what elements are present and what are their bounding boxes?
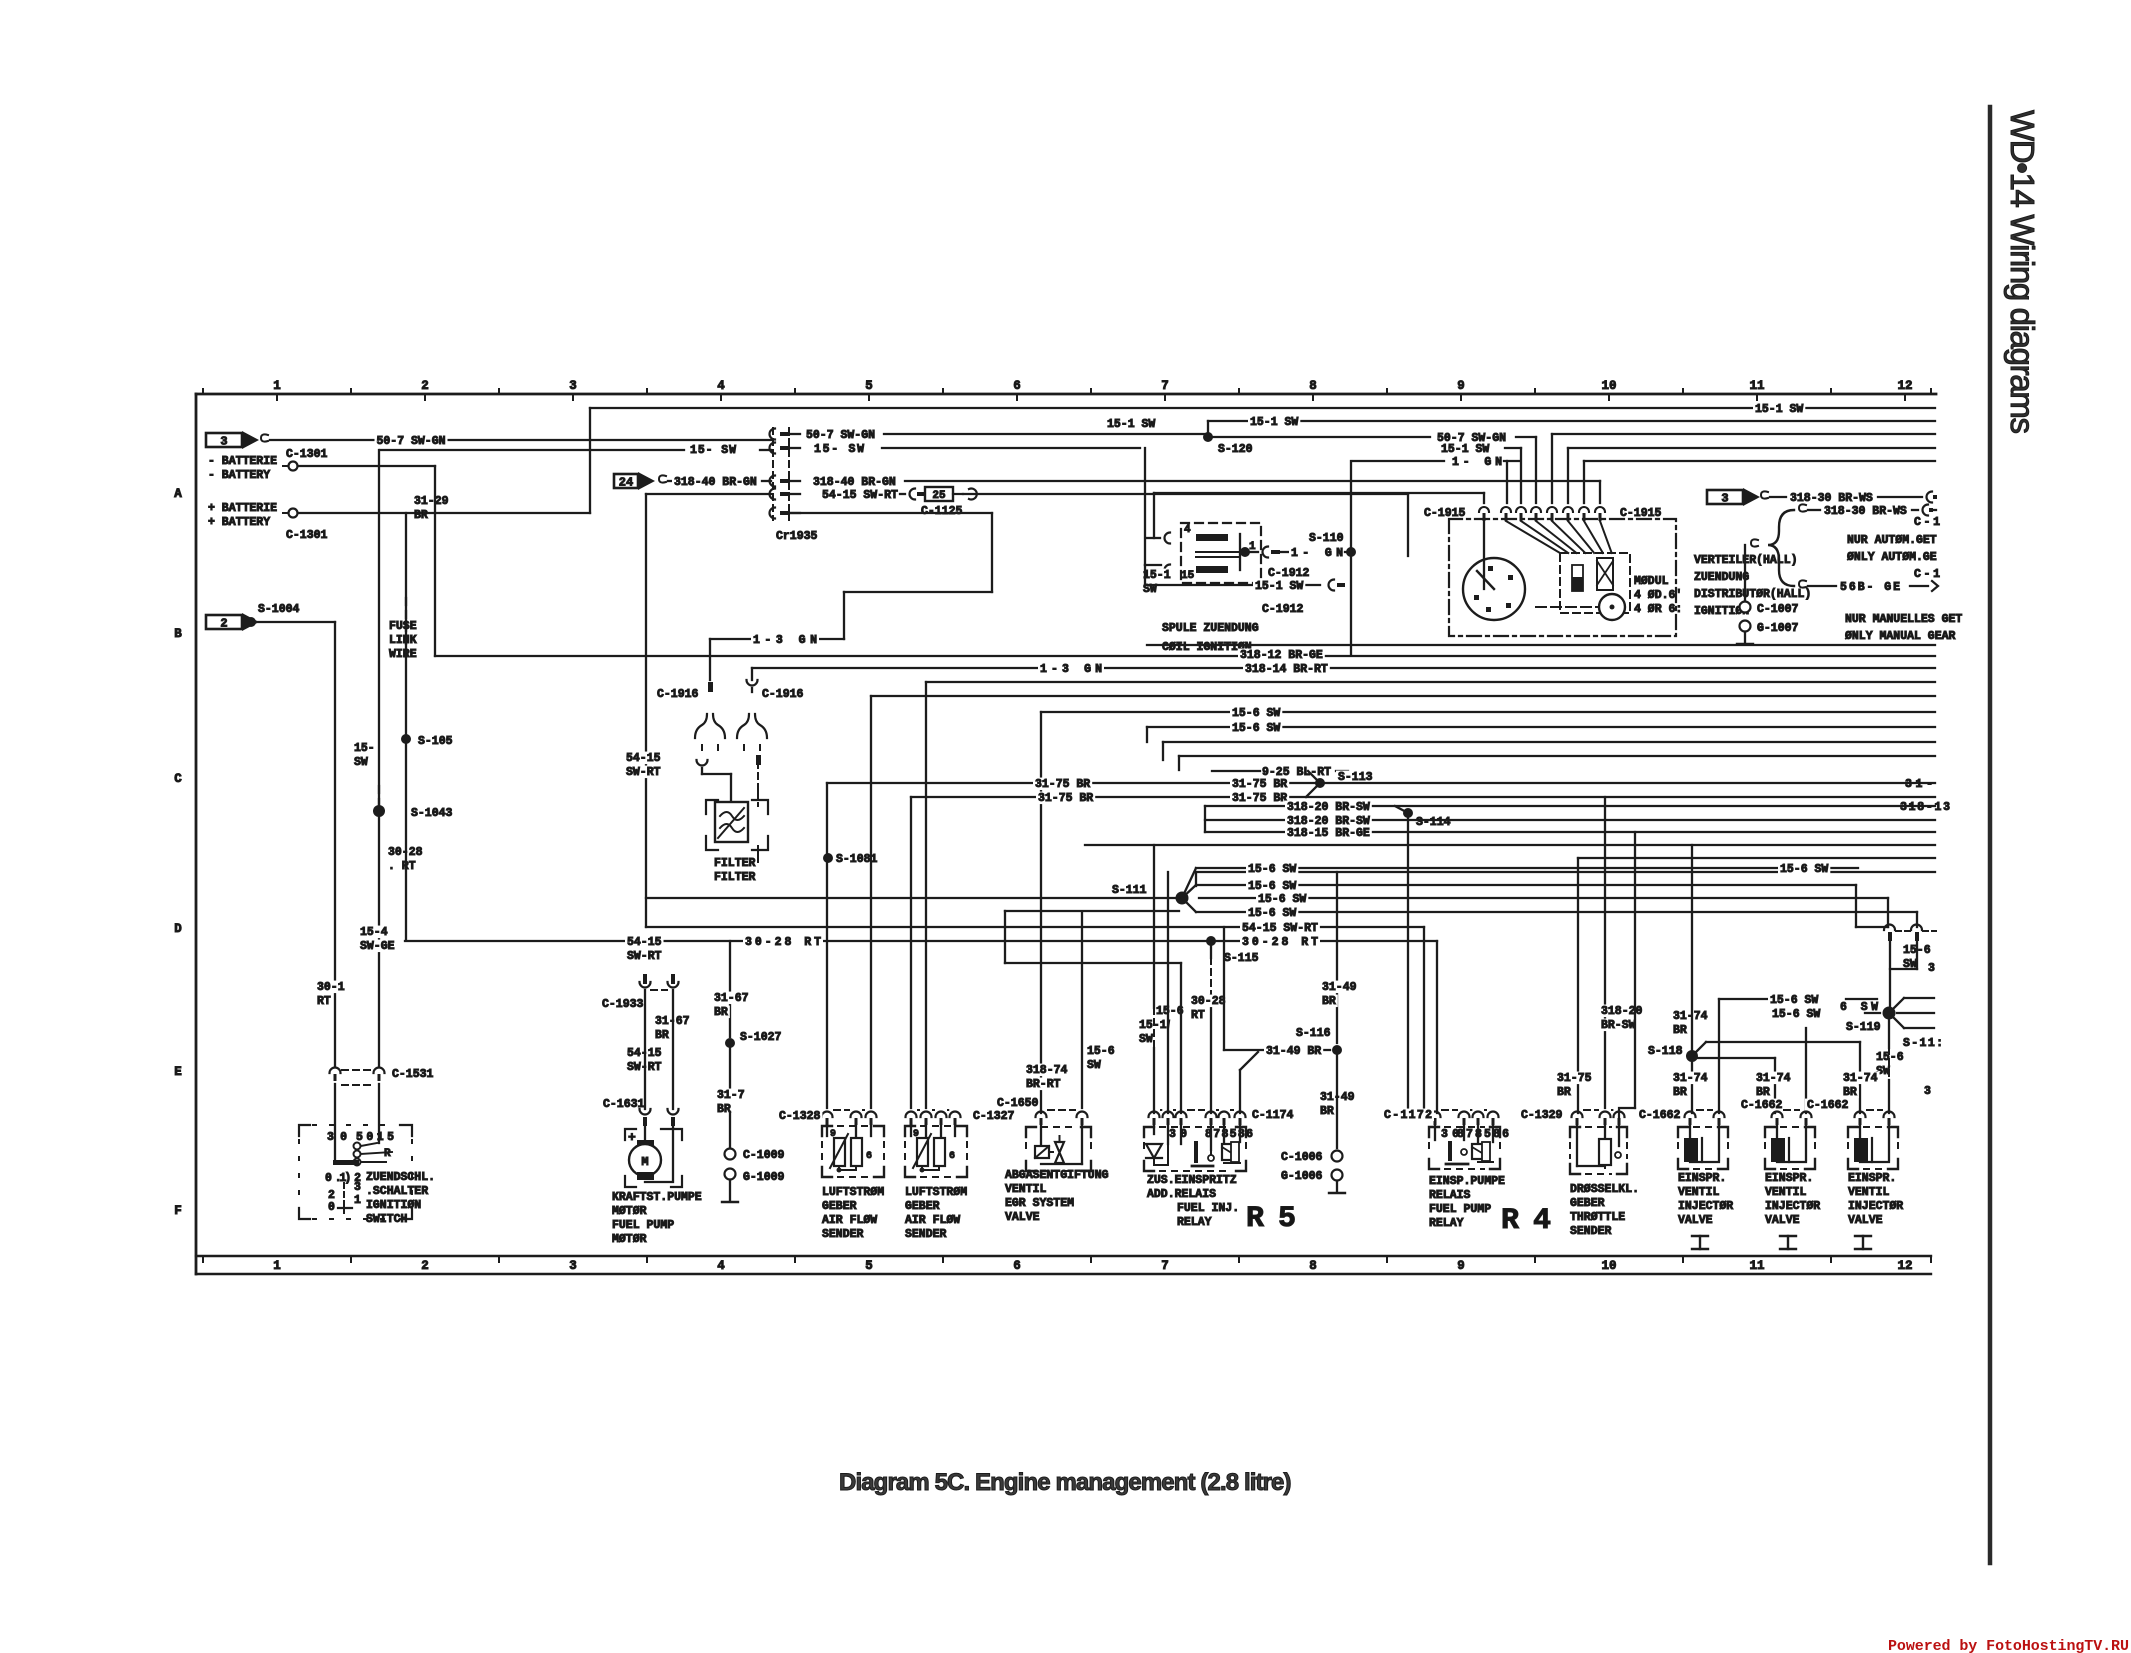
svg-text:+ BATTERY: + BATTERY xyxy=(208,516,270,529)
svg-text:ZUENDSCHL.: ZUENDSCHL. xyxy=(366,1171,435,1184)
svg-text:15-1 SW: 15-1 SW xyxy=(1441,443,1489,456)
svg-text:BR: BR xyxy=(1756,1086,1770,1099)
svg-text:3: 3 xyxy=(1721,492,1728,506)
svg-text:31-74: 31-74 xyxy=(1673,1010,1708,1023)
svg-text:BR: BR xyxy=(1673,1086,1687,1099)
svg-text:12: 12 xyxy=(1898,1259,1913,1273)
svg-text:S-1004: S-1004 xyxy=(258,603,299,616)
svg-text:C-1329: C-1329 xyxy=(1521,1109,1562,1122)
svg-text:12: 12 xyxy=(1898,379,1913,393)
svg-text:50-7 SW-GN: 50-7 SW-GN xyxy=(806,429,875,442)
svg-text:31-7: 31-7 xyxy=(717,1089,745,1102)
svg-text:8: 8 xyxy=(1309,379,1317,393)
svg-text:BR-RT: BR-RT xyxy=(1026,1078,1061,1091)
svg-text:318-40 BR-GN: 318-40 BR-GN xyxy=(813,476,896,489)
svg-text:SENDER: SENDER xyxy=(1570,1225,1611,1238)
svg-text:S-110: S-110 xyxy=(1309,532,1344,545)
svg-text:C-1916: C-1916 xyxy=(657,688,698,701)
svg-text:C-1662: C-1662 xyxy=(1807,1099,1848,1112)
svg-text:F: F xyxy=(174,1204,182,1218)
svg-text:3: 3 xyxy=(220,435,227,449)
svg-text:15-6 SW: 15-6 SW xyxy=(1232,722,1280,735)
svg-text:4 ØR 6:: 4 ØR 6: xyxy=(1634,603,1682,616)
svg-text:15-: 15- xyxy=(354,742,375,755)
svg-text:C-1006: C-1006 xyxy=(1281,1151,1322,1164)
svg-text:G-1007: G-1007 xyxy=(1757,622,1798,635)
svg-text:SW: SW xyxy=(1087,1059,1101,1072)
svg-text:2: 2 xyxy=(421,379,429,393)
svg-text:25: 25 xyxy=(932,490,946,502)
svg-text:31-75: 31-75 xyxy=(1557,1072,1592,1085)
svg-text:- BATTERIE: - BATTERIE xyxy=(208,455,277,468)
svg-text:DRØSSELKL.: DRØSSELKL. xyxy=(1570,1183,1639,1196)
svg-text:15-1: 15-1 xyxy=(1143,569,1171,582)
svg-text:MØTØR: MØTØR xyxy=(612,1205,647,1218)
svg-text:10: 10 xyxy=(1602,1259,1617,1273)
svg-text:C-1531: C-1531 xyxy=(392,1068,433,1081)
svg-text:C-1174: C-1174 xyxy=(1252,1109,1293,1122)
svg-text:BR: BR xyxy=(714,1006,728,1019)
svg-text:31-75 BR: 31-75 BR xyxy=(1038,792,1093,805)
svg-text:BR: BR xyxy=(1673,1024,1687,1037)
svg-text:BR: BR xyxy=(1557,1086,1571,1099)
svg-text:S-115: S-115 xyxy=(1224,952,1259,965)
svg-text:. RT: . RT xyxy=(388,860,416,873)
svg-text:S-1043: S-1043 xyxy=(411,807,452,820)
svg-text:SENDER: SENDER xyxy=(822,1228,863,1241)
svg-text:BR: BR xyxy=(1322,995,1336,1008)
svg-text:C-1662: C-1662 xyxy=(1741,1099,1782,1112)
svg-text:SWITCH: SWITCH xyxy=(366,1213,407,1226)
svg-text:WD•14 Wiring diagrams: WD•14 Wiring diagrams xyxy=(2004,110,2041,434)
svg-text:BR: BR xyxy=(655,1029,669,1042)
svg-text:31-75 BR: 31-75 BR xyxy=(1035,778,1090,791)
svg-text:D: D xyxy=(174,922,182,936)
svg-text:ADD.RELAIS: ADD.RELAIS xyxy=(1147,1188,1216,1201)
svg-text:15-6 SW: 15-6 SW xyxy=(1258,893,1306,906)
svg-text:10: 10 xyxy=(1602,379,1617,393)
svg-text:FILTER: FILTER xyxy=(714,871,755,884)
svg-text:31-29: 31-29 xyxy=(414,495,449,508)
svg-text:4 ØD.6': 4 ØD.6' xyxy=(1634,589,1682,602)
svg-text:.SCHALTER: .SCHALTER xyxy=(366,1185,428,1198)
svg-text:C-1328: C-1328 xyxy=(779,1110,820,1123)
svg-text:15-1 SW: 15-1 SW xyxy=(1250,416,1298,429)
svg-text:5: 5 xyxy=(865,1259,873,1273)
svg-text:ZUENDUNG: ZUENDUNG xyxy=(1694,571,1749,584)
svg-text:3: 3 xyxy=(1928,962,1935,975)
svg-text:318-30 BR-WS: 318-30 BR-WS xyxy=(1824,505,1907,518)
svg-text:1: 1 xyxy=(354,1194,361,1207)
svg-text:15-6 SW: 15-6 SW xyxy=(1770,994,1818,1007)
svg-text:ØNLY AUTØM.GE: ØNLY AUTØM.GE xyxy=(1847,551,1937,564)
svg-text:VENTIL: VENTIL xyxy=(1678,1186,1719,1199)
svg-text:VALVE: VALVE xyxy=(1678,1214,1713,1227)
svg-text:AIR FLØW: AIR FLØW xyxy=(822,1214,877,1227)
svg-text:C-1933: C-1933 xyxy=(602,998,643,1011)
svg-text:S-119: S-119 xyxy=(1846,1021,1881,1034)
svg-text:R: R xyxy=(384,1148,391,1160)
svg-text:ØNLY MANUAL GEAR: ØNLY MANUAL GEAR xyxy=(1845,630,1955,643)
svg-text:9: 9 xyxy=(1457,379,1465,393)
svg-text:M: M xyxy=(641,1155,648,1169)
svg-text:BR: BR xyxy=(1320,1105,1334,1118)
svg-text:31-74: 31-74 xyxy=(1756,1072,1791,1085)
svg-text:15-1 SW: 15-1 SW xyxy=(1255,580,1303,593)
svg-text:15-1: 15-1 xyxy=(1139,1019,1167,1032)
svg-text:E: E xyxy=(174,1065,182,1079)
svg-text:31-49 BR: 31-49 BR xyxy=(1266,1045,1321,1058)
svg-text:15-1 SW: 15-1 SW xyxy=(1755,403,1803,416)
svg-text:S-116: S-116 xyxy=(1296,1027,1331,1040)
svg-text:THRØTTLE: THRØTTLE xyxy=(1570,1211,1625,1224)
svg-text:INJECTØR: INJECTØR xyxy=(1848,1200,1903,1213)
svg-text:BR: BR xyxy=(414,509,428,522)
svg-text:15-6 SW: 15-6 SW xyxy=(1772,1008,1820,1021)
svg-text:11: 11 xyxy=(1750,379,1765,393)
svg-text:LUFTSTRØM: LUFTSTRØM xyxy=(822,1186,884,1199)
svg-text:GEBER: GEBER xyxy=(822,1200,857,1213)
svg-text:4: 4 xyxy=(717,379,725,393)
svg-text:EINSPR.: EINSPR. xyxy=(1848,1172,1896,1185)
svg-text:SW-RT: SW-RT xyxy=(627,950,662,963)
svg-text:318-20: 318-20 xyxy=(1601,1005,1642,1018)
svg-text:50-7 SW-GN: 50-7 SW-GN xyxy=(377,435,446,448)
svg-text:G-1009: G-1009 xyxy=(743,1171,784,1184)
svg-text:Diagram 5C. Engine management: Diagram 5C. Engine management (2.8 litre… xyxy=(839,1469,1291,1496)
svg-text:1: 1 xyxy=(273,1259,281,1273)
svg-text:C-1916: C-1916 xyxy=(762,688,803,701)
svg-text:S-105: S-105 xyxy=(418,735,453,748)
svg-text:VENTIL: VENTIL xyxy=(1005,1183,1046,1196)
svg-text:ABGASENTGIFTUNG: ABGASENTGIFTUNG xyxy=(1005,1169,1109,1182)
svg-text:30-28: 30-28 xyxy=(1191,995,1226,1008)
svg-text:NUR MANUELLES GET: NUR MANUELLES GET xyxy=(1845,613,1962,626)
svg-text:C-1: C-1 xyxy=(1914,516,1940,529)
svg-text:C-1631: C-1631 xyxy=(603,1098,644,1111)
svg-text:318-40 BR-GN: 318-40 BR-GN xyxy=(674,476,757,489)
svg-text:31-74: 31-74 xyxy=(1673,1072,1708,1085)
svg-text:31-74: 31-74 xyxy=(1843,1072,1878,1085)
svg-text:31-: 31- xyxy=(1905,778,1933,791)
svg-text:24: 24 xyxy=(619,476,633,490)
svg-text:SW: SW xyxy=(354,756,368,769)
svg-text:LINK: LINK xyxy=(389,634,417,647)
svg-text:INJECTØR: INJECTØR xyxy=(1765,1200,1820,1213)
svg-text:C-1125: C-1125 xyxy=(921,505,962,518)
svg-text:EINSPR.: EINSPR. xyxy=(1765,1172,1813,1185)
svg-text:6: 6 xyxy=(866,1151,872,1162)
svg-text:S-118: S-118 xyxy=(1648,1045,1683,1058)
svg-text:BR: BR xyxy=(717,1103,731,1116)
svg-text:C-1301: C-1301 xyxy=(286,529,327,542)
svg-text:6: 6 xyxy=(949,1151,955,1162)
svg-text:30-28: 30-28 xyxy=(388,846,423,859)
svg-text:1: 1 xyxy=(273,379,281,393)
svg-text:SW-GE: SW-GE xyxy=(360,940,395,953)
svg-text:318-14 BR-RT: 318-14 BR-RT xyxy=(1245,663,1328,676)
svg-text:FUEL PUMP: FUEL PUMP xyxy=(1429,1203,1491,1216)
svg-text:VENTIL: VENTIL xyxy=(1848,1186,1889,1199)
svg-text:318-30 BR-WS: 318-30 BR-WS xyxy=(1790,492,1873,505)
svg-text:15-6: 15-6 xyxy=(1156,1005,1184,1018)
svg-text:9: 9 xyxy=(830,1129,836,1140)
svg-text:318-74: 318-74 xyxy=(1026,1064,1067,1077)
svg-text:FUSE: FUSE xyxy=(389,620,417,633)
svg-text:30-1: 30-1 xyxy=(317,981,345,994)
svg-text:318-20 BR-SW: 318-20 BR-SW xyxy=(1287,801,1370,814)
svg-text:GEBER: GEBER xyxy=(1570,1197,1605,1210)
svg-text:FUEL PUMP: FUEL PUMP xyxy=(612,1219,674,1232)
svg-text:Cr1935: Cr1935 xyxy=(776,530,817,543)
svg-text:C-1007: C-1007 xyxy=(1757,603,1798,616)
svg-text:BR: BR xyxy=(1843,1086,1857,1099)
svg-text:2: 2 xyxy=(220,617,227,631)
svg-text:7: 7 xyxy=(1161,379,1169,393)
svg-text:FUEL INJ.: FUEL INJ. xyxy=(1177,1202,1239,1215)
svg-text:ZUS.EINSPRITZ: ZUS.EINSPRITZ xyxy=(1147,1174,1237,1187)
svg-text:5: 5 xyxy=(865,379,873,393)
svg-text:MØDUL: MØDUL xyxy=(1634,575,1669,588)
svg-text:31-49: 31-49 xyxy=(1322,981,1357,994)
svg-text:15: 15 xyxy=(1181,570,1195,582)
svg-text:VALVE: VALVE xyxy=(1765,1214,1800,1227)
svg-text:15-6 SW: 15-6 SW xyxy=(1248,907,1296,920)
svg-text:MØTØR: MØTØR xyxy=(612,1233,647,1246)
svg-text:+ BATTERIE: + BATTERIE xyxy=(208,502,277,515)
svg-text:EINSPR.: EINSPR. xyxy=(1678,1172,1726,1185)
svg-text:RT: RT xyxy=(317,995,331,1008)
svg-text:C-1912: C-1912 xyxy=(1268,567,1309,580)
svg-text:RT: RT xyxy=(1191,1009,1205,1022)
svg-text:8: 8 xyxy=(1309,1259,1317,1273)
svg-text:A: A xyxy=(174,487,182,501)
svg-text:AIR FLØW: AIR FLØW xyxy=(905,1214,960,1227)
svg-text:31-67: 31-67 xyxy=(714,992,749,1005)
svg-text:EGR SYSTEM: EGR SYSTEM xyxy=(1005,1197,1074,1210)
svg-text:6: 6 xyxy=(1013,379,1021,393)
svg-text:NUR AUTØM.GET: NUR AUTØM.GET xyxy=(1847,534,1937,547)
svg-text:15- SW: 15- SW xyxy=(690,444,736,457)
svg-text:54-15: 54-15 xyxy=(626,752,661,765)
svg-text:318-15 BR-GE: 318-15 BR-GE xyxy=(1287,827,1370,840)
svg-text:31-75 BR: 31-75 BR xyxy=(1232,778,1287,791)
svg-text:3: 3 xyxy=(354,1181,361,1194)
svg-text:2: 2 xyxy=(421,1259,429,1273)
svg-text:EINSP.PUMPE: EINSP.PUMPE xyxy=(1429,1175,1505,1188)
svg-text:15-6 SW: 15-6 SW xyxy=(1248,863,1296,876)
svg-text:15-1 SW: 15-1 SW xyxy=(1107,418,1155,431)
svg-text:SW: SW xyxy=(1139,1033,1153,1046)
svg-text:54-15: 54-15 xyxy=(627,936,662,949)
svg-text:318-12 BR-GE: 318-12 BR-GE xyxy=(1240,649,1323,662)
svg-text:B: B xyxy=(174,627,182,641)
svg-text:3: 3 xyxy=(1924,1085,1931,1098)
svg-text:C-1327: C-1327 xyxy=(973,1110,1014,1123)
svg-text:9: 9 xyxy=(913,1129,919,1140)
svg-text:S-11:: S-11: xyxy=(1903,1037,1943,1050)
svg-text:FILTER: FILTER xyxy=(714,857,755,870)
svg-text:S-1081: S-1081 xyxy=(836,853,877,866)
svg-text:C: C xyxy=(174,772,182,786)
svg-text:3: 3 xyxy=(569,1259,577,1273)
svg-text:VALVE: VALVE xyxy=(1005,1211,1040,1224)
svg-text:4: 4 xyxy=(717,1259,725,1273)
svg-text:C-1009: C-1009 xyxy=(743,1149,784,1162)
svg-text:KRAFTST.PUMPE: KRAFTST.PUMPE xyxy=(612,1191,702,1204)
svg-text:RELAY: RELAY xyxy=(1429,1217,1464,1230)
svg-text:RELAIS: RELAIS xyxy=(1429,1189,1470,1202)
svg-text:C-1301: C-1301 xyxy=(286,448,327,461)
svg-text:15-6 SW: 15-6 SW xyxy=(1232,707,1280,720)
svg-text:7: 7 xyxy=(1161,1259,1169,1273)
svg-text:+: + xyxy=(628,1130,636,1145)
svg-text:15-6 SW: 15-6 SW xyxy=(1780,863,1828,876)
svg-text:BR-SW: BR-SW xyxy=(1601,1019,1636,1032)
svg-text:VALVE: VALVE xyxy=(1848,1214,1883,1227)
svg-text:S-114: S-114 xyxy=(1416,816,1451,829)
svg-text:C-1: C-1 xyxy=(1914,568,1940,581)
svg-text:S-120: S-120 xyxy=(1218,443,1253,456)
svg-text:- BATTERY: - BATTERY xyxy=(208,469,270,482)
svg-text:6: 6 xyxy=(1013,1259,1021,1273)
svg-text:SPULE ZUENDUNG: SPULE ZUENDUNG xyxy=(1162,622,1259,635)
svg-text:9: 9 xyxy=(1457,1259,1465,1273)
svg-text:S-1027: S-1027 xyxy=(740,1031,781,1044)
svg-text:INJECTØR: INJECTØR xyxy=(1678,1200,1733,1213)
svg-text:31-75 BR: 31-75 BR xyxy=(1232,792,1287,805)
svg-text:15-6: 15-6 xyxy=(1087,1045,1115,1058)
svg-text:IGNITIØN: IGNITIØN xyxy=(366,1199,421,1212)
svg-text:LUFTSTRØM: LUFTSTRØM xyxy=(905,1186,967,1199)
svg-text:GEBER: GEBER xyxy=(905,1200,940,1213)
svg-text:S-111: S-111 xyxy=(1112,884,1147,897)
svg-text:54-15 SW-RT: 54-15 SW-RT xyxy=(822,489,898,502)
svg-text:15-6 SW: 15-6 SW xyxy=(1248,880,1296,893)
svg-text:56B- GE: 56B- GE xyxy=(1840,581,1900,594)
svg-text:C-1912: C-1912 xyxy=(1262,603,1303,616)
svg-text:WIRE: WIRE xyxy=(389,648,417,661)
svg-text:DISTRIBUTØR(HALL): DISTRIBUTØR(HALL) xyxy=(1694,588,1811,601)
svg-text:4: 4 xyxy=(1184,524,1191,536)
svg-text:C-1662: C-1662 xyxy=(1639,1109,1680,1122)
svg-text:G-1006: G-1006 xyxy=(1281,1170,1322,1183)
svg-text:SENDER: SENDER xyxy=(905,1228,946,1241)
svg-text:0: 0 xyxy=(328,1201,335,1214)
svg-text:C-1650: C-1650 xyxy=(997,1097,1038,1110)
svg-text:VENTIL: VENTIL xyxy=(1765,1186,1806,1199)
svg-text:15-4: 15-4 xyxy=(360,926,388,939)
svg-text:Powered by FotoHostingTV.RU: Powered by FotoHostingTV.RU xyxy=(1888,1638,2129,1653)
svg-text:RELAY: RELAY xyxy=(1177,1216,1212,1229)
svg-text:3: 3 xyxy=(569,379,577,393)
svg-text:11: 11 xyxy=(1750,1259,1765,1273)
svg-text:SW-RT: SW-RT xyxy=(626,766,661,779)
svg-text:54-15 SW-RT: 54-15 SW-RT xyxy=(1242,922,1318,935)
